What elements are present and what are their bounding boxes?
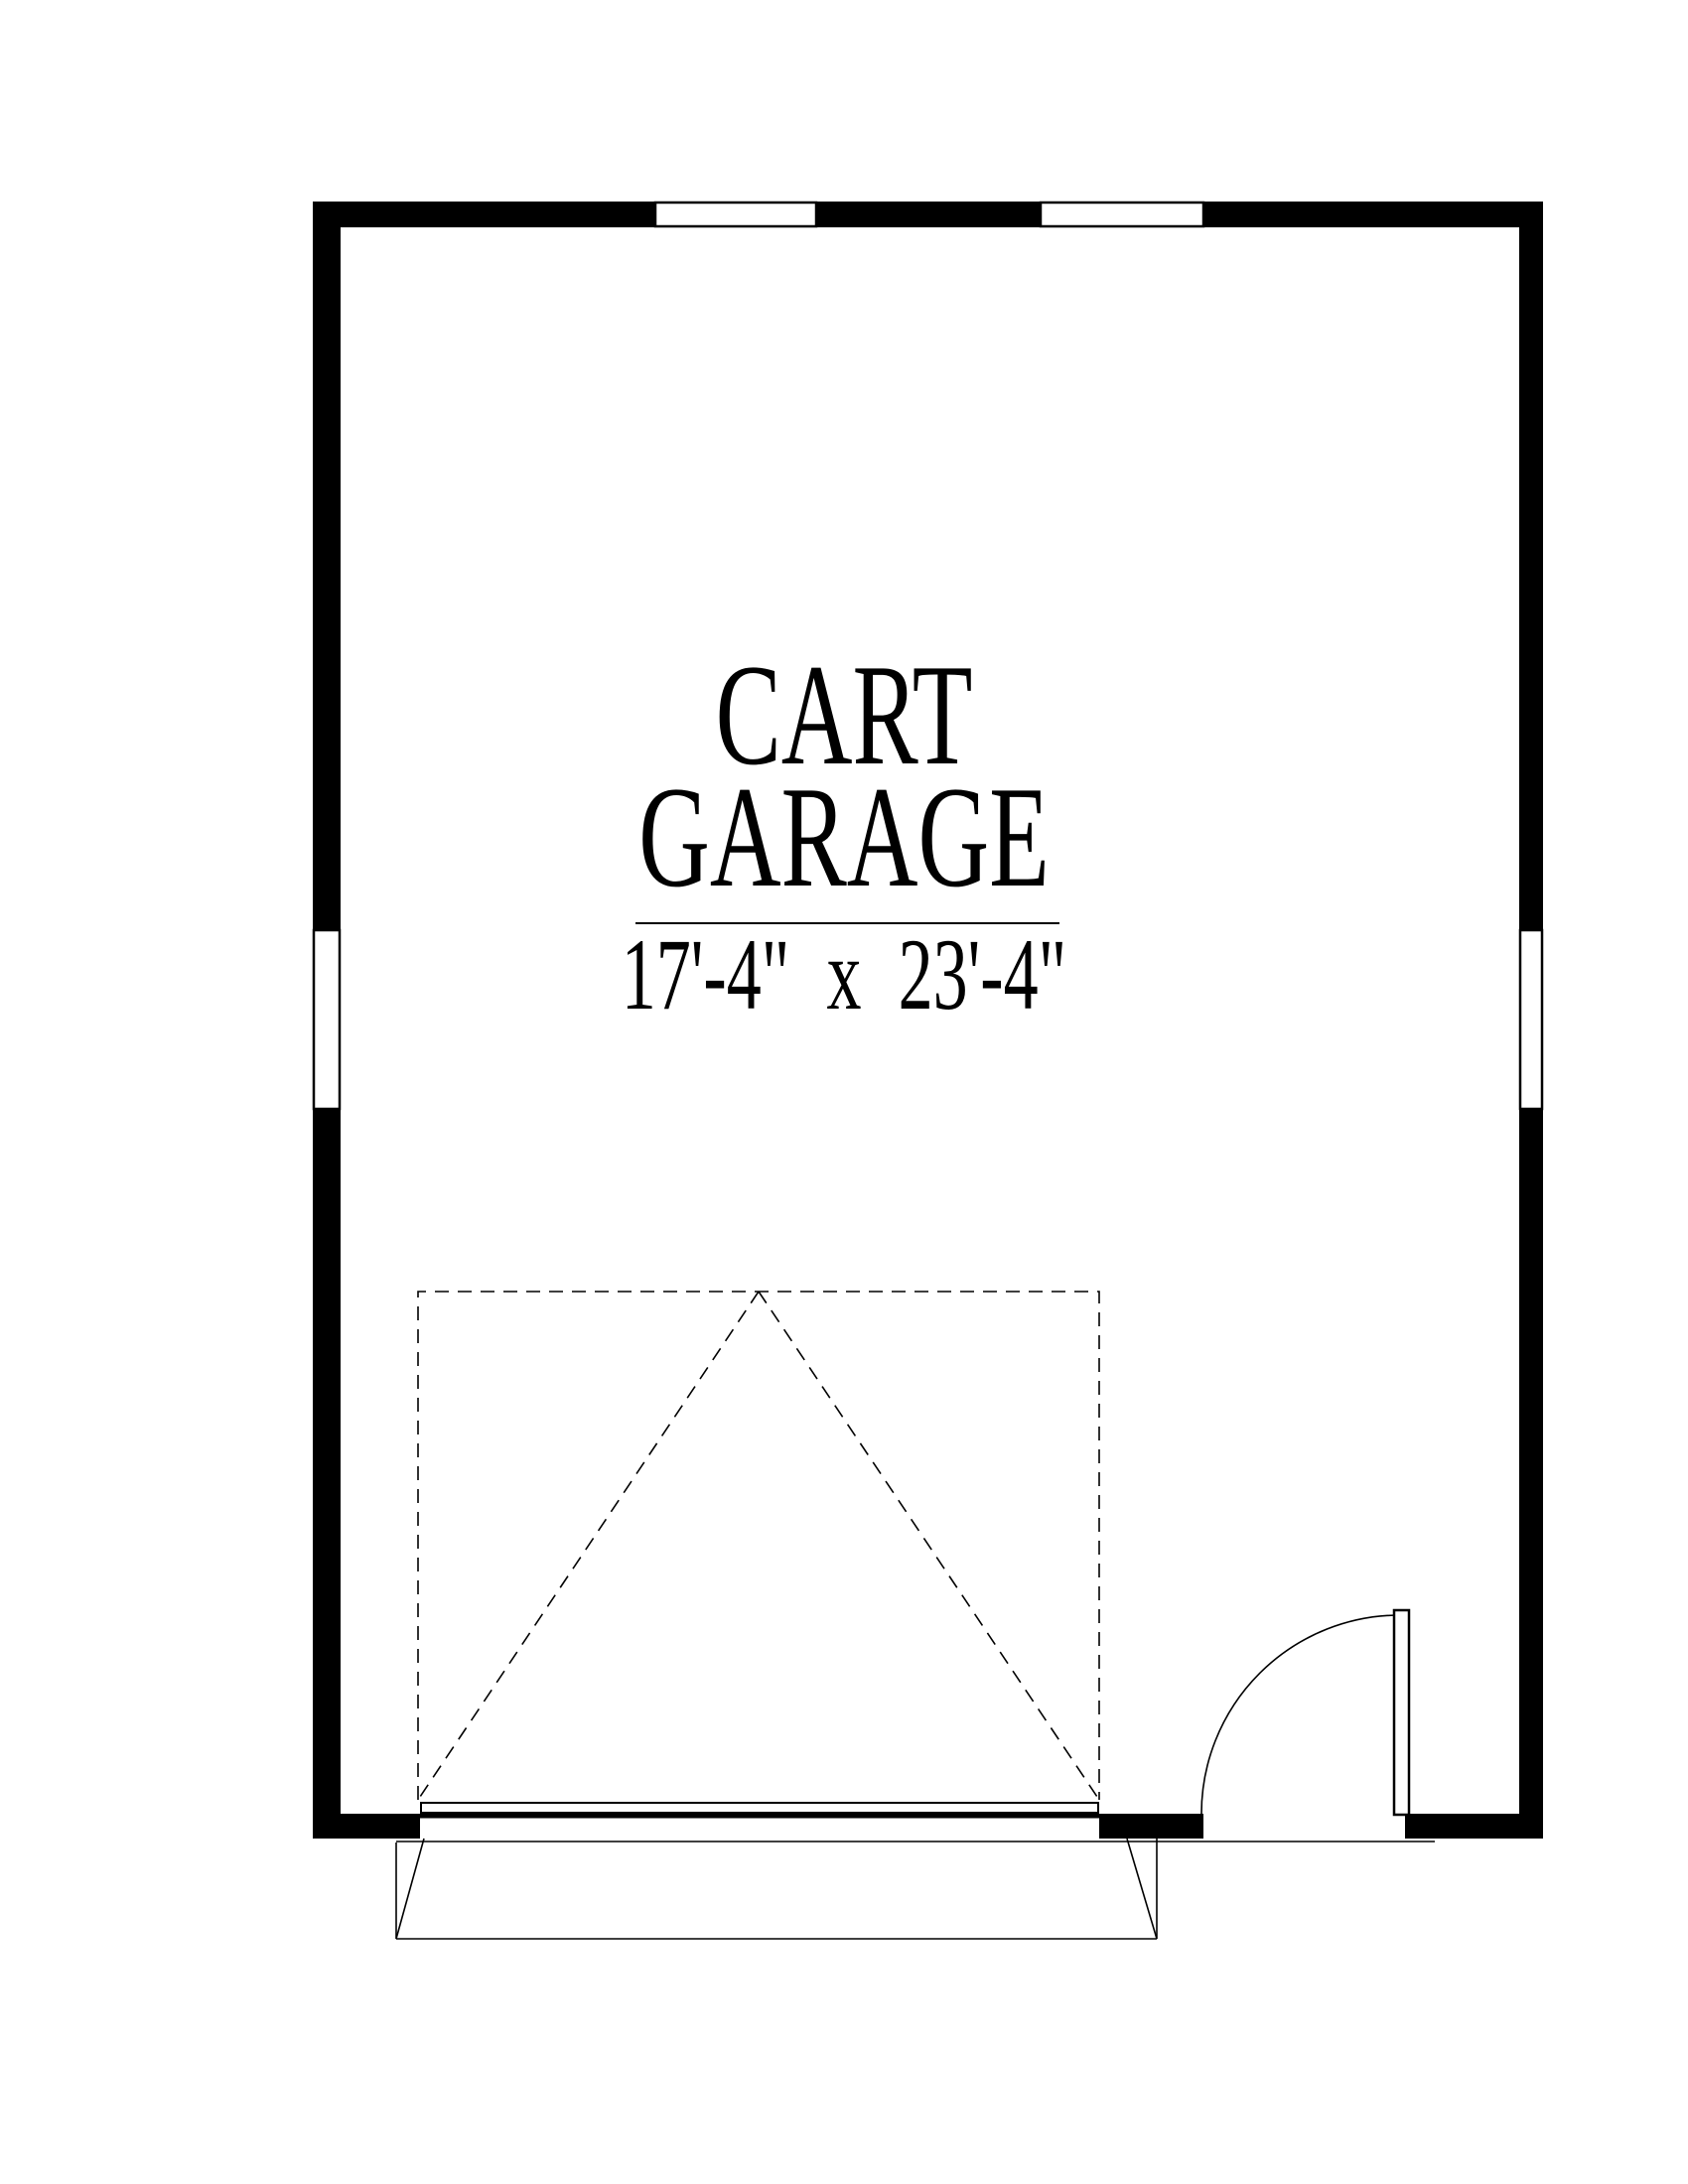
garage-door-dashed-diagonal-left (418, 1292, 759, 1800)
window-left (314, 930, 340, 1109)
entry-door-leaf (1394, 1610, 1409, 1815)
garage-door-panel (421, 1803, 1098, 1813)
room-title-line2: GARAGE (638, 764, 1050, 909)
window-top-right (1041, 203, 1203, 226)
floor-plan-drawing (0, 0, 1688, 2184)
room-dimensions-text: 17'-4" x 23'-4" (622, 924, 1066, 1026)
apron-splay-left (396, 1839, 424, 1939)
apron (396, 1839, 1435, 1939)
garage-door-swing-symbol (418, 1292, 1099, 1800)
wall-bottom-middle-segment (1099, 1814, 1203, 1839)
apron-splay-right (1127, 1839, 1157, 1939)
wall-bottom-left-segment (313, 1814, 420, 1839)
entry-door-swing-arc (1201, 1615, 1400, 1814)
window-right (1520, 930, 1542, 1109)
wall-top (313, 202, 1543, 227)
garage-door-dashed-diagonal-right (759, 1292, 1099, 1800)
garage-door-dashed-outline (418, 1292, 1099, 1800)
entry-door (1201, 1610, 1409, 1815)
garage-door (418, 1292, 1099, 1816)
wall-bottom-right-segment (1405, 1814, 1543, 1839)
floor-plan-page: CART GARAGE 17'-4" x 23'-4" (0, 0, 1688, 2184)
window-top-left (655, 203, 816, 226)
